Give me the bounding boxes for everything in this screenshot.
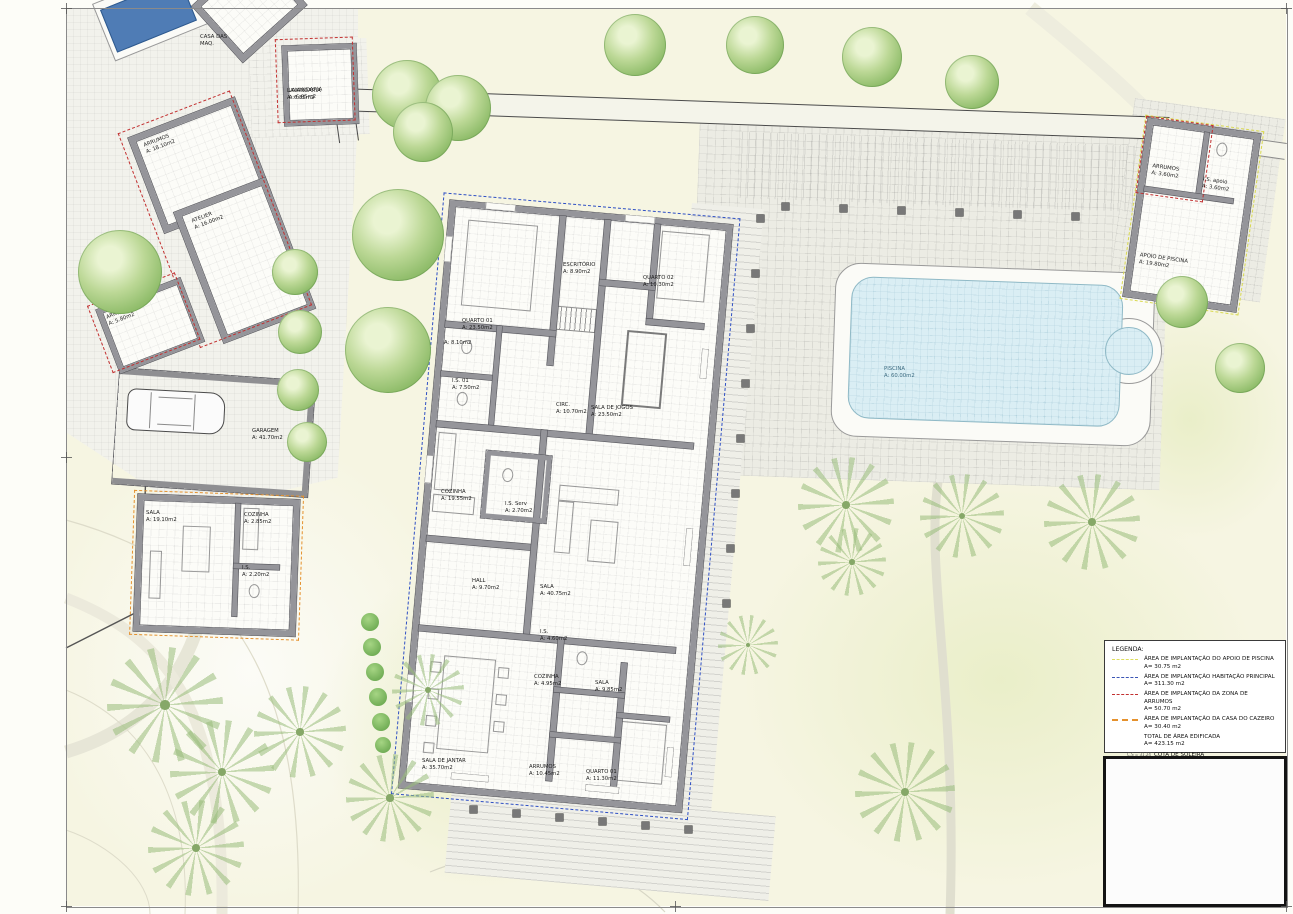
tree [272,249,318,295]
room-label-piscina: PISCINAA: 60.00m2 [884,366,915,380]
room-label-quarto-02: QUARTO 02A: 10.30m2 [643,275,674,289]
tree [842,27,902,87]
tree [1215,343,1265,393]
bed [656,231,710,303]
window-opening [683,528,693,566]
interior-wall [436,421,694,449]
car-rear-window-line [193,395,196,431]
tree [278,310,322,354]
toilet [1215,142,1228,157]
palm-tree [855,742,955,842]
pillar [470,806,477,813]
room-label-sala-de-jogos: SALA DE JOGOSA: 23.50m2 [591,405,633,419]
car-roof-line [159,397,193,400]
tree [345,307,431,393]
interior-wall [546,637,565,781]
pillar [898,207,905,214]
pillar [757,215,764,222]
pillar [556,814,563,821]
frame-tick [61,901,72,912]
room-label-is-01: I.S. 01A: 7.50m2 [452,378,479,392]
pillar [782,203,789,210]
tree [352,189,444,281]
toilet [456,391,468,406]
billiard-table [621,330,667,409]
bed [461,220,538,312]
room-label-escritorio: ESCRITÓRIOA: 8.90m2 [563,262,595,276]
legend-swatch-cazeiro [1112,719,1138,721]
room-label-sala-de-jantar: SALA DE JANTARA: 35.70m2 [422,758,466,772]
pillar [642,822,649,829]
tree [604,14,666,76]
room-label-quarto-01-bottom: QUARTO 01A: 11.30m2 [586,769,617,783]
interior-wall [547,216,566,366]
pillar [737,435,744,442]
bush [363,638,381,656]
pillar [742,380,749,387]
chair [495,694,507,706]
palm-tree [1044,474,1140,570]
pool-water-round [1105,327,1153,375]
tree [1156,276,1208,328]
pillar [513,810,520,817]
legend-swatch-arrumos [1112,694,1138,695]
pillar [732,490,739,497]
legend-title: LEGENDA: [1112,646,1278,653]
stairs [553,306,597,334]
room-label-sala-caseiro: SALAA: 19.10m2 [146,510,177,524]
legend-item: TOTAL DE ÁREA EDIFICADAA= 423.15 m2 [1112,734,1278,749]
pillar [685,826,692,833]
room-label-circ: CIRC.A: 10.70m2 [556,402,587,416]
pillar [727,545,734,552]
room-label-sala: SALAA: 40.75m2 [540,584,571,598]
pillar [599,818,606,825]
chair [493,721,505,733]
interior-wall [426,535,531,550]
laundry-building [282,43,359,126]
toilet [248,584,259,598]
window-opening [665,747,675,777]
palm-tree [920,474,1004,558]
window-opening [424,455,433,484]
pillar [1072,213,1079,220]
frame-tick [61,3,72,14]
bush [375,737,391,753]
tree [726,16,784,74]
room-label-hall: HALLA: 9.70m2 [472,578,499,592]
bush [361,613,379,631]
legend-item: ÁREA DE IMPLANTAÇÃO HABITAÇÃO PRINCIPALA… [1112,674,1278,689]
interior-wall [232,503,241,616]
interior-wall [550,732,621,743]
room-label-is-bottom: I.S.A: 4.60m2 [540,629,567,643]
palm-tree [254,686,346,778]
car [126,388,226,435]
pillar [723,600,730,607]
legend-item: ÁREA DE IMPLANTAÇÃO DO APOIO DE PISCINAA… [1112,656,1278,671]
legend-swatch-apoio [1112,659,1138,660]
room-label-sala-bottom: SALAA: 9.85m2 [595,680,622,694]
interior-wall [646,319,704,330]
room-label-quarto-01: QUARTO 01A: 23.50m2 [462,318,493,332]
chair [423,742,435,754]
sofa [554,501,574,554]
table [181,526,211,573]
legend-item: ÁREA DE IMPLANTAÇÃO DA ZONA DE ARRUMOSA=… [1112,691,1278,714]
room-label-casa-maq: CASA DASMAQ. [200,34,227,48]
bush [369,688,387,706]
pool-water [847,276,1124,427]
legend-swatch-habitacao [1112,677,1138,678]
window-opening [699,349,709,379]
car-roof-line [157,424,191,427]
palm-tree [392,654,464,726]
room-label-is-serv: I.S. ServA: 2.70m2 [505,501,532,515]
tree [287,422,327,462]
legend: LEGENDA: ÁREA DE IMPLANTAÇÃO DO APOIO DE… [1104,640,1286,753]
room-label-is-caseiro: I.S.A: 2.20m2 [242,565,269,579]
frame-tick [670,901,681,912]
frame-tick [61,452,72,463]
tree [945,55,999,109]
room-label-cozinha: COZINHAA: 19.55m2 [441,489,472,503]
room-label-arrumos-bottom: ARRUMOSA: 10.45m2 [529,764,560,778]
room-label-cozinha-bottom: COZINHAA: 4.95m2 [534,674,561,688]
frame-tick [1281,901,1292,912]
title-block [1103,756,1287,907]
palm-tree [346,754,434,842]
car-windshield-line [149,392,152,428]
window-opening [444,236,453,263]
toilet [576,651,588,666]
main-house [399,200,733,813]
frame-tick [1281,3,1292,14]
window-opening [485,202,515,212]
room-label-lavandaria: LAVANDARIAA: 6.85m2 [287,88,321,102]
kitchen-counter [434,432,457,491]
bush [372,713,390,731]
pillar [747,325,754,332]
tree [277,369,319,411]
palm-tree [148,800,244,896]
tree [78,230,162,314]
pillar [840,205,847,212]
tree [393,102,453,162]
bed [616,721,667,785]
room-label-is-02: A: 8.10m2 [444,340,471,347]
sofa [148,550,162,598]
pillar [752,270,759,277]
pillar [956,209,963,216]
chair [498,667,510,679]
palm-tree [818,528,886,596]
pillar [1014,211,1021,218]
site-plan: ARRUMOSA: 18.10m2 ATELIERA: 16.00m2 ARRU… [0,0,1293,914]
window-opening [625,214,655,224]
legend-item: ÁREA DE IMPLANTAÇÃO DA CASA DO CAZEIROA=… [1112,716,1278,731]
palm-tree [718,615,778,675]
window-opening [451,772,489,782]
coffee-table [587,519,619,563]
room-label-garagem: GARAGEMA: 41.70m2 [252,428,283,442]
bush [366,663,384,681]
room-label-cozinha-caseiro: COZINHAA: 2.85m2 [244,512,271,526]
